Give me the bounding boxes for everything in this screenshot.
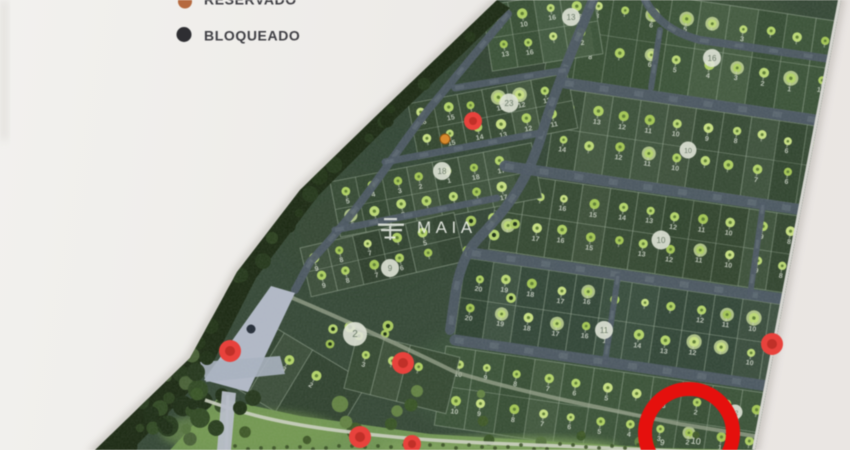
- svg-text:MAIA: MAIA: [417, 218, 477, 237]
- svg-text:7: 7: [807, 276, 812, 284]
- svg-text:23: 23: [505, 99, 514, 108]
- svg-text:2: 2: [352, 329, 358, 340]
- svg-text:10: 10: [684, 148, 692, 155]
- svg-text:11: 11: [600, 326, 609, 335]
- svg-text:10: 10: [657, 236, 666, 245]
- svg-text:10: 10: [690, 435, 701, 446]
- svg-text:BLOQUEADO: BLOQUEADO: [204, 28, 300, 44]
- svg-text:RESERVADO: RESERVADO: [204, 0, 297, 8]
- svg-text:18: 18: [438, 167, 447, 176]
- svg-text:5: 5: [810, 187, 815, 195]
- svg-text:13: 13: [567, 13, 576, 22]
- svg-text:9: 9: [388, 264, 393, 273]
- svg-text:16: 16: [708, 54, 717, 63]
